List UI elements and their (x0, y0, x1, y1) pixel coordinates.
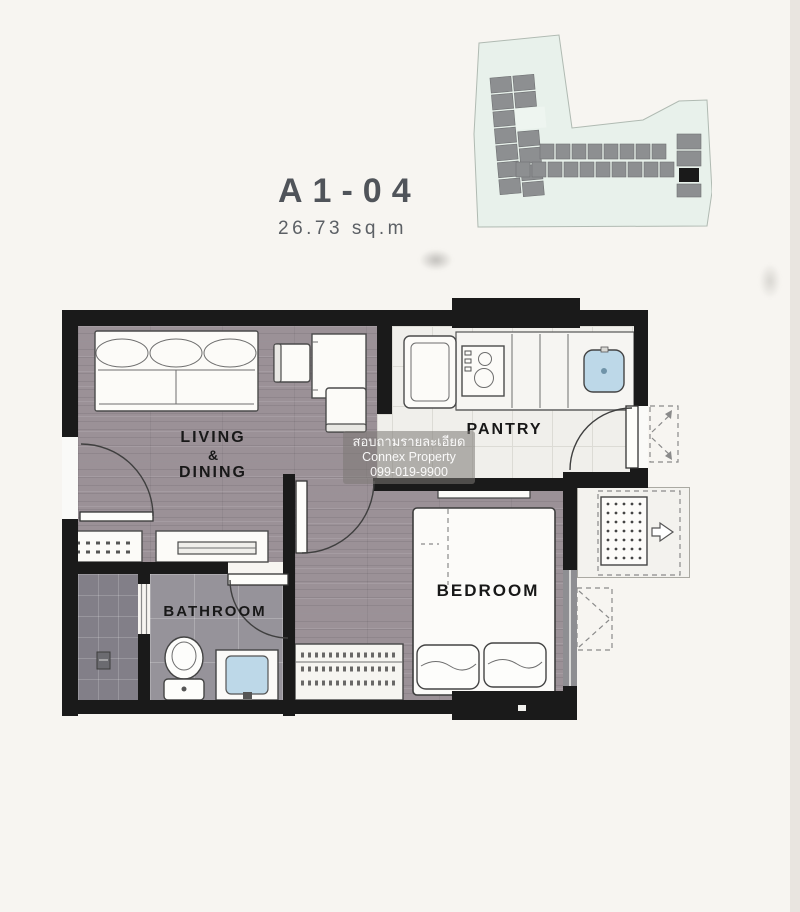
site-unit-highlight (679, 168, 699, 182)
floor-plan-page: { "unit": { "code": "A1-04", "area": "26… (0, 0, 800, 912)
scan-smudge (756, 258, 784, 304)
bedroom-window (563, 570, 577, 686)
site-plan-map (462, 10, 712, 232)
entrance-landing (650, 406, 678, 462)
scan-edge-shadow (790, 0, 800, 912)
floor-shower (78, 574, 138, 700)
title-block: A1-04 26.73 sq.m (278, 172, 421, 240)
bathroom-label: BATHROOM (152, 602, 278, 622)
living-label-line3: DINING (157, 463, 269, 483)
watermark-line-phone: 099-019-9900 (347, 465, 471, 481)
floor-ac-ledge (577, 487, 690, 578)
window-swing-box (577, 588, 612, 650)
floor-bathroom (150, 574, 283, 700)
unit-area: 26.73 sq.m (278, 218, 421, 240)
living-label-line2: & (157, 448, 269, 463)
living-dining-label: LIVING & DINING (157, 428, 269, 483)
watermark: สอบถามรายละเอียด Connex Property 099-019… (343, 431, 475, 484)
living-label-line1: LIVING (157, 428, 269, 448)
unit-code: A1-04 (278, 172, 421, 211)
scan-smudge (414, 246, 458, 274)
watermark-line-brand: Connex Property (347, 450, 471, 466)
bedroom-label: BEDROOM (427, 581, 549, 601)
watermark-line-thai: สอบถามรายละเอียด (347, 434, 471, 450)
